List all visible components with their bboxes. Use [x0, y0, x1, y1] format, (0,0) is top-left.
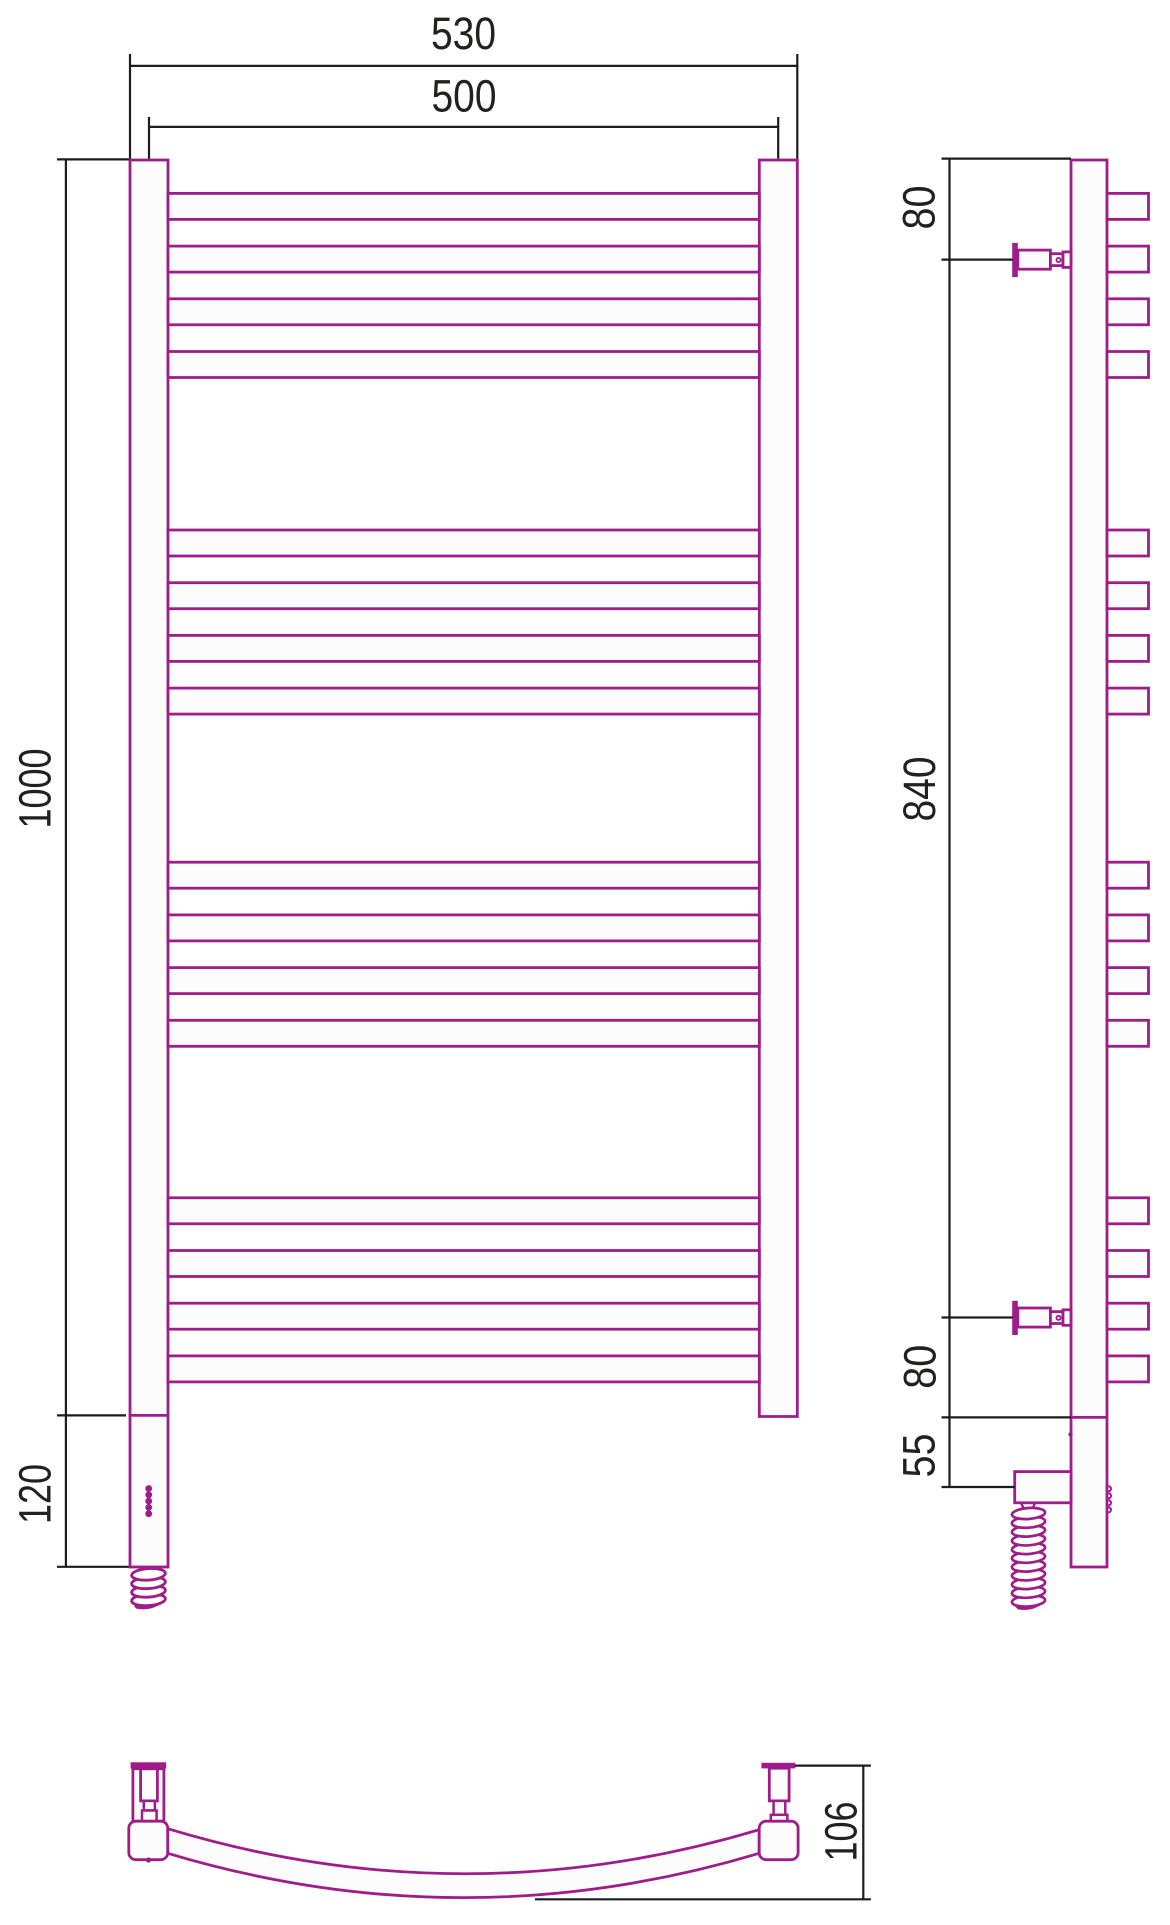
svg-text:500: 500 — [432, 71, 497, 122]
svg-text:1000: 1000 — [10, 749, 61, 829]
svg-text:80: 80 — [895, 1345, 946, 1389]
svg-text:55: 55 — [894, 1434, 945, 1478]
svg-text:840: 840 — [894, 757, 945, 822]
svg-text:530: 530 — [431, 8, 496, 59]
svg-text:106: 106 — [816, 1802, 867, 1862]
svg-text:120: 120 — [10, 1464, 61, 1524]
svg-text:80: 80 — [894, 186, 945, 230]
